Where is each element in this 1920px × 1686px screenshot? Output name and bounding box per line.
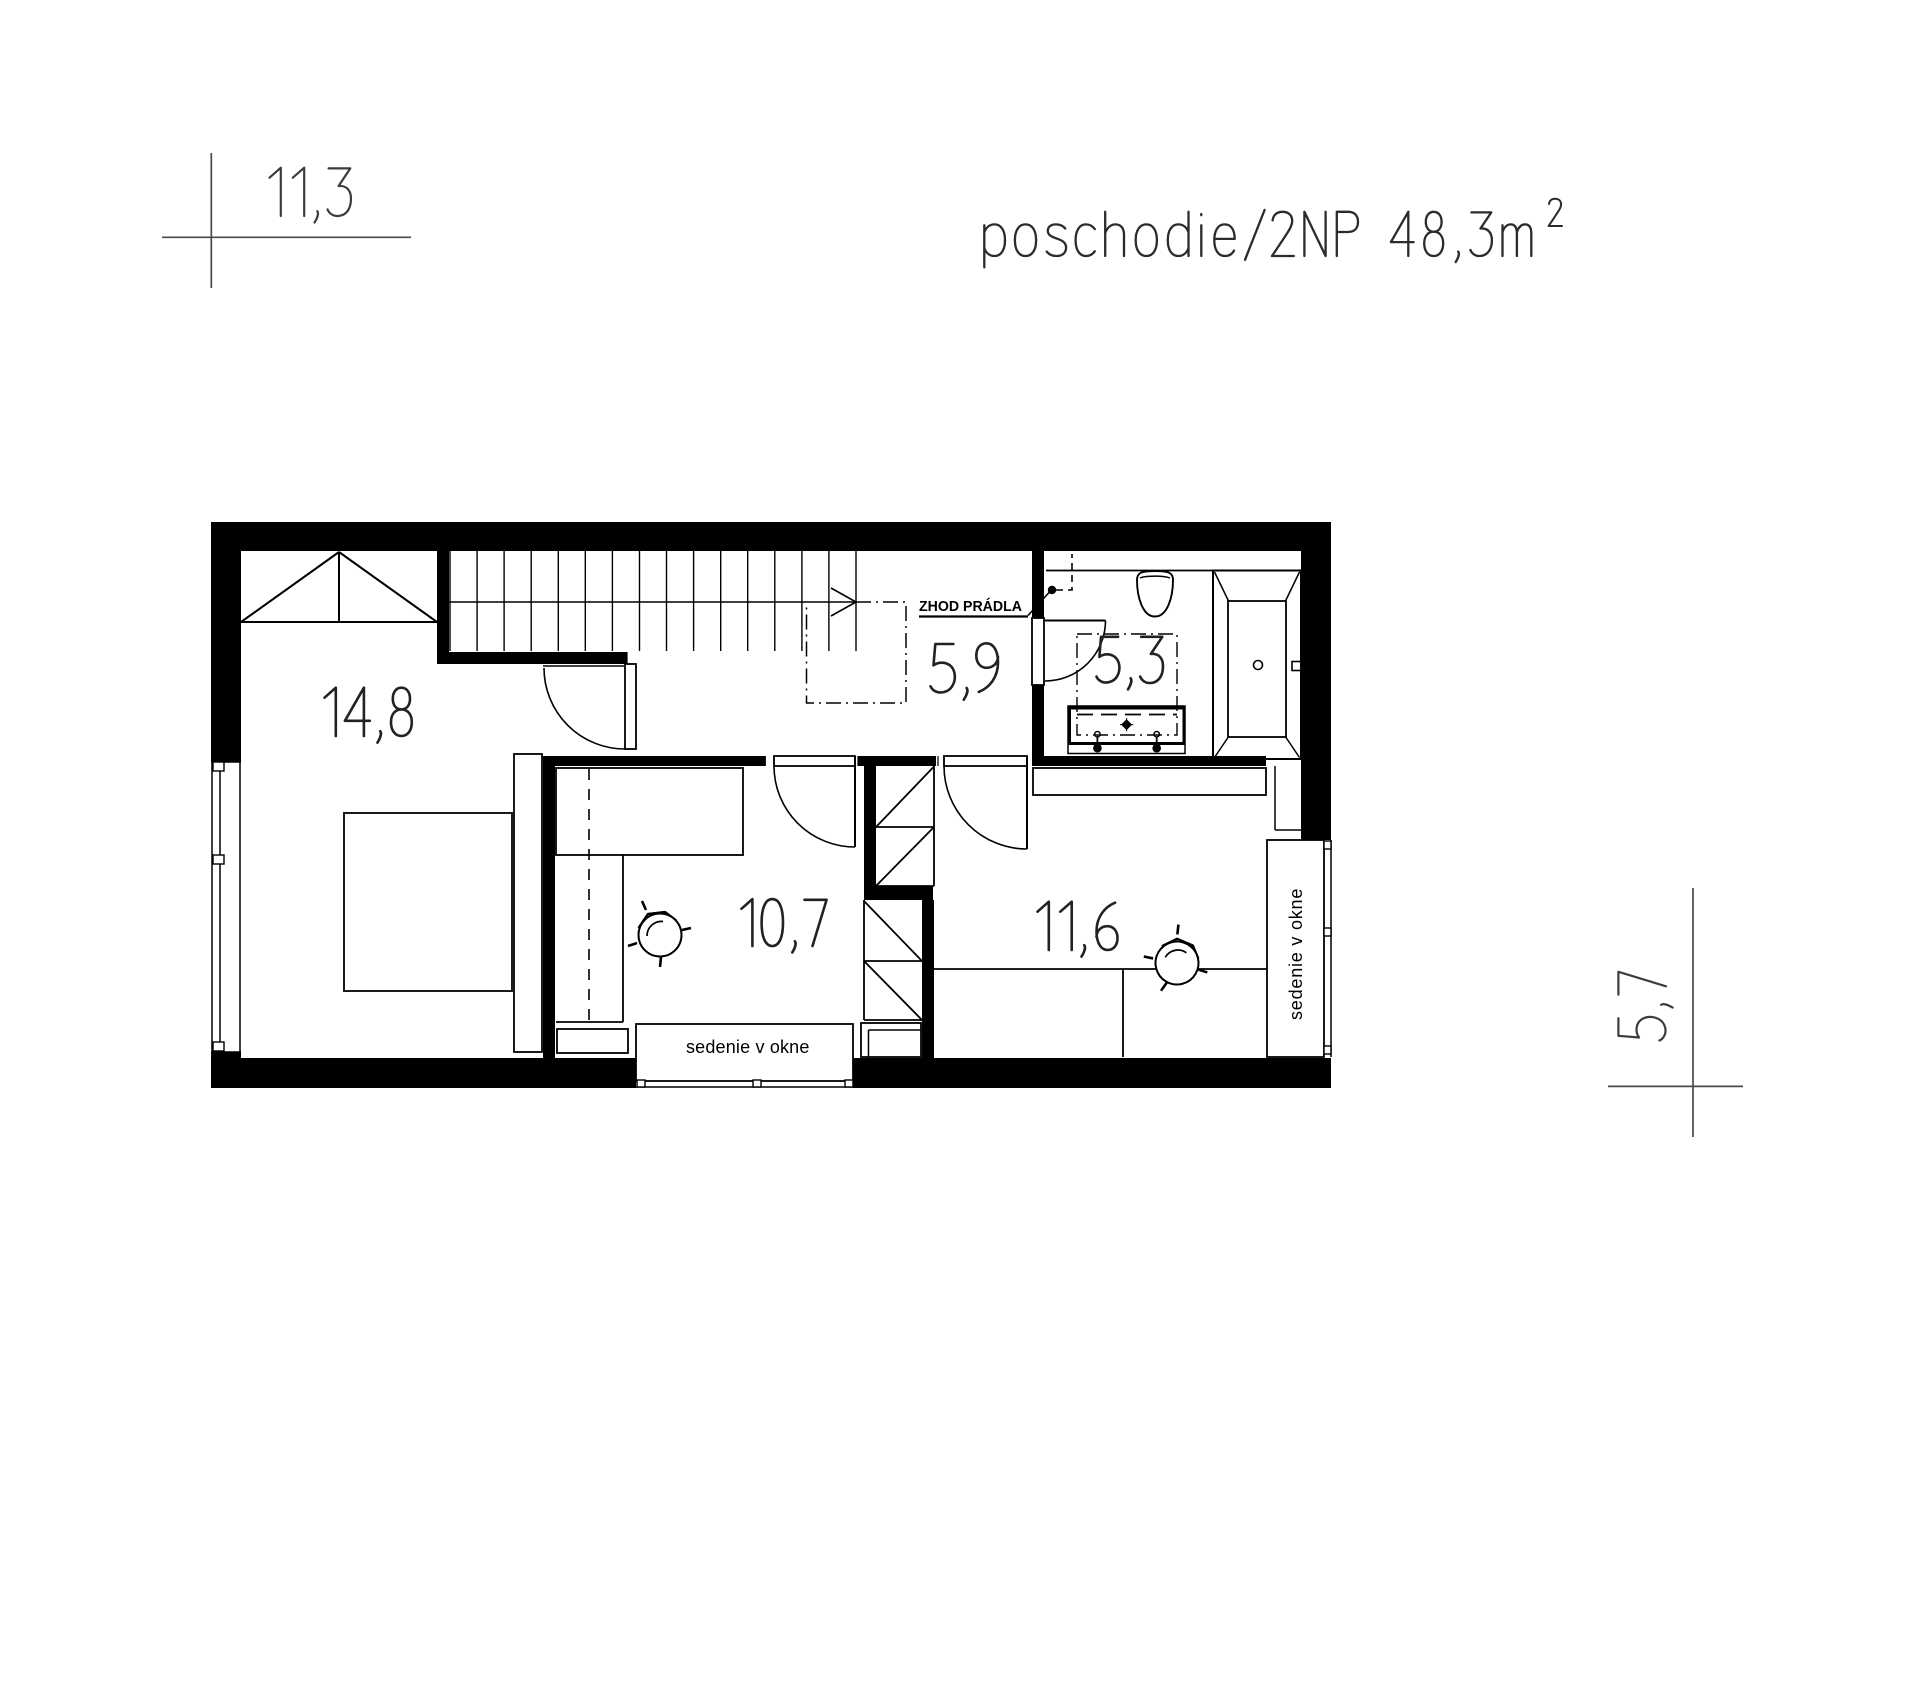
svg-text:ZHOD PRÁDLA: ZHOD PRÁDLA bbox=[919, 598, 1022, 615]
svg-text:sedenie v okne: sedenie v okne bbox=[686, 1037, 810, 1057]
svg-text:sedenie v okne: sedenie v okne bbox=[1286, 888, 1306, 1020]
